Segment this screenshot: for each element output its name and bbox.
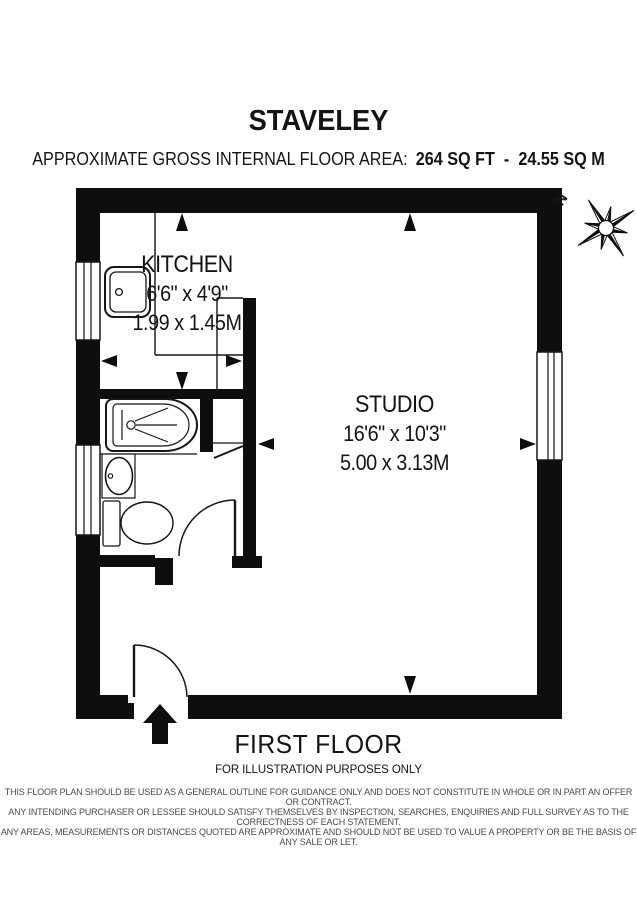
cupboard-door bbox=[213, 443, 243, 458]
floor-area-label: APPROXIMATE GROSS INTERNAL FLOOR AREA: bbox=[32, 149, 407, 169]
disclaimer: THIS FLOOR PLAN SHOULD BE USED AS A GENE… bbox=[0, 787, 637, 847]
floor-label: FIRST FLOOR bbox=[16, 729, 621, 760]
toilet-icon bbox=[103, 501, 173, 546]
bathtub-icon bbox=[100, 399, 197, 454]
studio-dimensions-imperial: 16'6" x 10'3" bbox=[302, 419, 487, 448]
kitchen-label: KITCHEN 6'6" x 4'9" 1.99 x 1.45M bbox=[97, 250, 277, 337]
illustration-note: FOR ILLUSTRATION PURPOSES ONLY bbox=[0, 764, 637, 776]
floorplan-page: STAVELEY APPROXIMATE GROSS INTERNAL FLOO… bbox=[0, 0, 637, 900]
basin-icon bbox=[102, 454, 135, 498]
floor-area-line: APPROXIMATE GROSS INTERNAL FLOOR AREA:26… bbox=[32, 149, 605, 170]
front-door bbox=[134, 645, 187, 697]
floor-area-value: 264 SQ FT - 24.55 SQ M bbox=[416, 149, 605, 169]
window-left-bathroom bbox=[76, 445, 100, 535]
disclaimer-line: ANY AREAS, MEASUREMENTS OR DISTANCES QUO… bbox=[0, 827, 637, 847]
disclaimer-line: ANY INTENDING PURCHASER OR LESSEE SHOULD… bbox=[0, 807, 637, 827]
kitchen-dimensions-imperial: 6'6" x 4'9" bbox=[97, 279, 277, 308]
property-title: STAVELEY bbox=[19, 105, 618, 138]
studio-dimensions-metric: 5.00 x 3.13M bbox=[302, 448, 487, 477]
kitchen-name: KITCHEN bbox=[97, 250, 277, 279]
bathroom-door bbox=[179, 500, 235, 556]
kitchen-dimensions-metric: 1.99 x 1.45M bbox=[97, 308, 277, 337]
window-right-studio bbox=[537, 352, 562, 460]
studio-name: STUDIO bbox=[302, 390, 487, 419]
disclaimer-line: THIS FLOOR PLAN SHOULD BE USED AS A GENE… bbox=[0, 787, 637, 807]
compass-rose-icon bbox=[561, 183, 637, 274]
studio-label: STUDIO 16'6" x 10'3" 5.00 x 3.13M bbox=[302, 390, 487, 477]
